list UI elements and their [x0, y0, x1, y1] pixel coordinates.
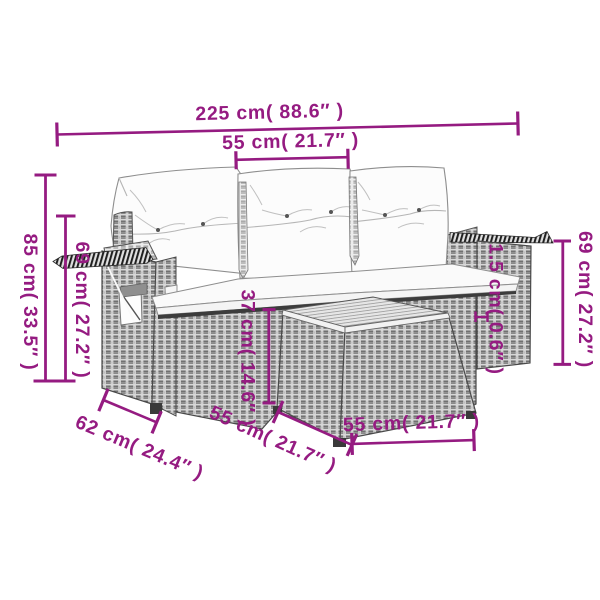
svg-text:85 cm( 33.5″ ): 85 cm( 33.5″ ) [19, 234, 41, 371]
svg-text:55 cm( 21.7″ ): 55 cm( 21.7″ ) [222, 129, 359, 154]
svg-text:1.5 cm( 0.6″ ): 1.5 cm( 0.6″ ) [485, 243, 507, 374]
svg-text:55 cm( 21.7″ ): 55 cm( 21.7″ ) [343, 410, 481, 436]
svg-text:69 cm( 27.2″ ): 69 cm( 27.2″ ) [574, 231, 596, 368]
svg-text:225 cm( 88.6″ ): 225 cm( 88.6″ ) [195, 100, 344, 126]
svg-text:37 cm( 14.6″ ): 37 cm( 14.6″ ) [237, 290, 259, 427]
svg-text:69 cm( 27.2″ ): 69 cm( 27.2″ ) [71, 242, 93, 379]
